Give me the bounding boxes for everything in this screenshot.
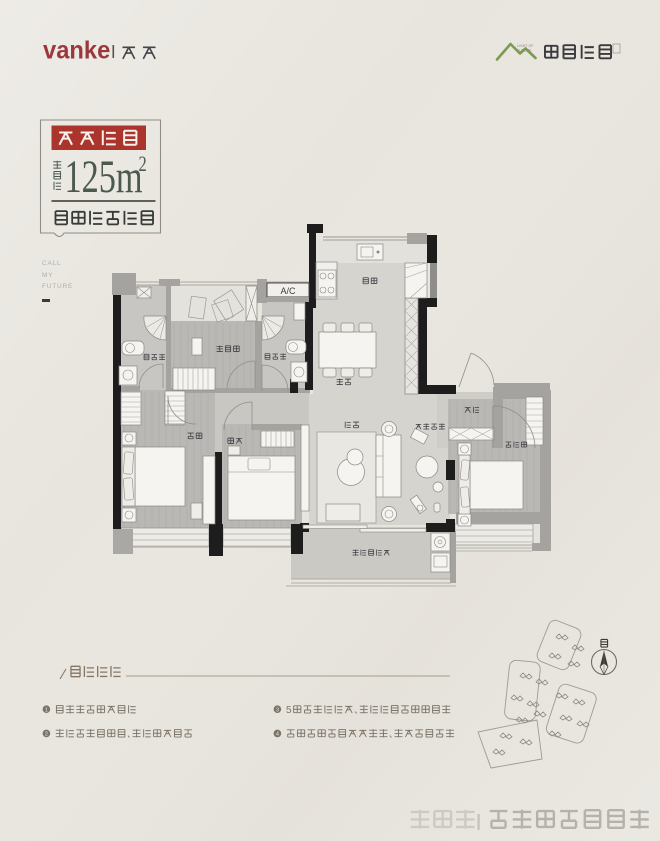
svg-text:3: 3 [276,707,279,713]
svg-text:A/C: A/C [280,286,296,296]
svg-text:vanke: vanke [43,37,110,65]
svg-text:4: 4 [276,732,279,738]
svg-text:5: 5 [286,705,292,716]
svg-text:1: 1 [45,707,48,713]
svg-text:MY: MY [42,272,53,279]
svg-text:FUTURE: FUTURE [517,49,532,53]
svg-text:LIGHT OF: LIGHT OF [517,44,534,48]
svg-text:FUTURE: FUTURE [42,283,73,290]
svg-text:125m: 125m [65,150,143,203]
svg-text:2: 2 [45,732,48,738]
svg-text:CALL: CALL [42,260,61,267]
svg-text:2: 2 [139,153,147,177]
